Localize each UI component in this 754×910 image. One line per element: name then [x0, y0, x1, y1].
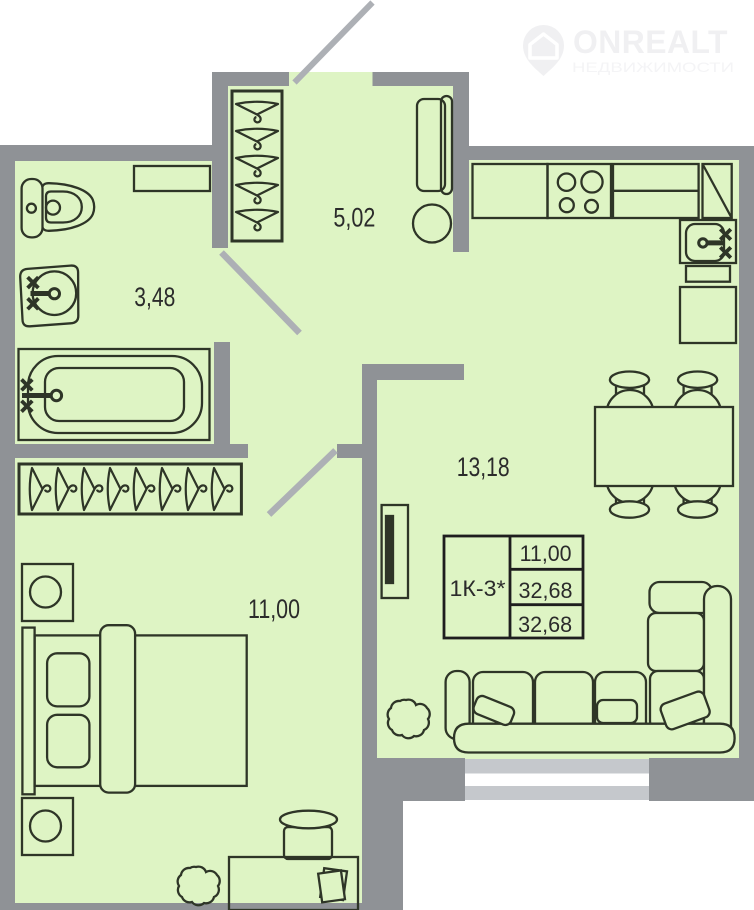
svg-text:1К-3*: 1К-3*	[450, 576, 506, 601]
svg-text:НЕДВИЖИМОСТИ: НЕДВИЖИМОСТИ	[572, 59, 734, 75]
svg-text:5,02: 5,02	[333, 202, 375, 232]
svg-text:11,00: 11,00	[520, 541, 572, 566]
svg-text:3,48: 3,48	[134, 282, 175, 312]
svg-text:ONREALT: ONREALT	[573, 24, 728, 60]
svg-text:32,68: 32,68	[518, 612, 572, 637]
svg-text:32,68: 32,68	[519, 578, 573, 603]
svg-text:13,18: 13,18	[457, 452, 510, 482]
svg-text:11,00: 11,00	[248, 594, 300, 624]
